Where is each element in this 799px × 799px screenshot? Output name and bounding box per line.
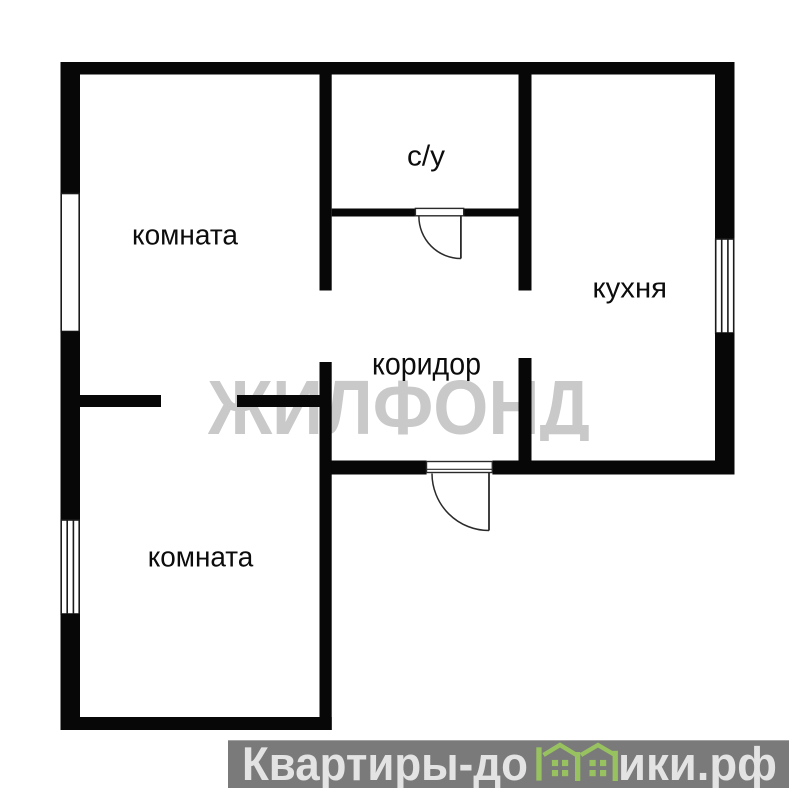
svg-text:с/у: с/у xyxy=(407,141,446,173)
svg-text:коридор: коридор xyxy=(372,346,481,382)
svg-text:кухня: кухня xyxy=(593,273,668,305)
svg-text:ики.рф: ики.рф xyxy=(618,737,777,790)
svg-text:комната: комната xyxy=(148,542,254,574)
svg-text:Квартиры-до: Квартиры-до xyxy=(242,737,528,790)
svg-text:комната: комната xyxy=(132,220,238,252)
